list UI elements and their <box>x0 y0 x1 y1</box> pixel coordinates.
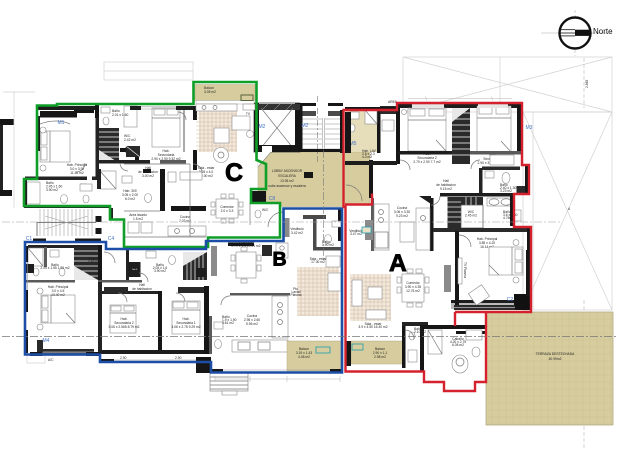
svg-text:Plasma: Plasma <box>291 293 302 297</box>
svg-text:Norte: Norte <box>593 27 613 36</box>
svg-text:TV Plasma: TV Plasma <box>463 262 467 278</box>
svg-text:4.3 m2: 4.3 m2 <box>362 155 372 159</box>
svg-text:C4: C4 <box>108 236 115 242</box>
svg-text:A: A <box>389 250 407 277</box>
svg-text:3.06 x 2.565 8.79 m2: 3.06 x 2.565 8.79 m2 <box>109 325 140 329</box>
svg-text:0.48 m2: 0.48 m2 <box>88 259 100 263</box>
svg-text:A/C: A/C <box>48 358 54 362</box>
svg-text:3.90 m2: 3.90 m2 <box>154 269 166 273</box>
svg-text:C2: C2 <box>507 297 514 303</box>
svg-text:C: C <box>225 159 243 187</box>
svg-text:5.96 m2: 5.96 m2 <box>246 322 258 326</box>
svg-text:LOBBY ASCENSOR: LOBBY ASCENSOR <box>272 169 303 173</box>
svg-text:2.0 x 3.3: 2.0 x 3.3 <box>221 209 234 213</box>
svg-text:3.05 m2: 3.05 m2 <box>204 90 216 94</box>
svg-text:TERRAZA DESTECHADA: TERRAZA DESTECHADA <box>536 352 575 356</box>
svg-text:2.01 x 1.60: 2.01 x 1.60 <box>112 113 128 117</box>
svg-text:2.98 m2: 2.98 m2 <box>374 355 386 359</box>
svg-text:3.06 x 2.75 9.29 m2: 3.06 x 2.75 9.29 m2 <box>171 325 200 329</box>
svg-text:40.99m2: 40.99m2 <box>549 357 562 361</box>
svg-text:3.00 m2: 3.00 m2 <box>142 174 154 178</box>
svg-text:C1: C1 <box>26 236 33 242</box>
svg-text:2.42 m2: 2.42 m2 <box>124 138 136 142</box>
svg-text:1.5 m2: 1.5 m2 <box>133 217 143 221</box>
svg-text:2.05 x 1.55 1.95 m2: 2.05 x 1.55 1.95 m2 <box>40 266 69 270</box>
svg-text:3.9 x 4.50 16.40 m2: 3.9 x 4.50 16.40 m2 <box>358 325 387 329</box>
svg-text:2.45 m2: 2.45 m2 <box>465 214 477 218</box>
svg-text:9.23 m2: 9.23 m2 <box>396 214 408 218</box>
svg-text:M1: M1 <box>58 120 65 126</box>
svg-text:4.48 m2: 4.48 m2 <box>298 355 310 359</box>
svg-text:2.70 x 2.90 7.7 m2: 2.70 x 2.90 7.7 m2 <box>413 160 440 164</box>
svg-text:B: B <box>273 249 287 271</box>
svg-text:3.23 m2: 3.23 m2 <box>500 189 512 193</box>
svg-text:2.10 m2: 2.10 m2 <box>414 330 426 334</box>
svg-text:3.47 m2: 3.47 m2 <box>350 232 362 236</box>
svg-text:M3: M3 <box>526 125 533 131</box>
svg-text:M2: M2 <box>302 123 309 129</box>
svg-text:3.90 m2: 3.90 m2 <box>46 188 58 192</box>
svg-text:M2: M2 <box>259 124 266 130</box>
svg-text:Tab.0: Tab.0 <box>132 269 138 271</box>
svg-text:2.90: 2.90 <box>175 356 182 360</box>
svg-text:3.42 m2: 3.42 m2 <box>291 231 303 235</box>
svg-text:de habitacion: de habitacion <box>132 287 152 291</box>
svg-text:6.08 m2: 6.08 m2 <box>452 343 464 347</box>
svg-text:3.61 m2: 3.61 m2 <box>222 321 234 325</box>
svg-text:C8: C8 <box>269 196 276 202</box>
svg-text:2.90: 2.90 <box>120 356 127 360</box>
svg-text:12.75 m2: 12.75 m2 <box>406 289 420 293</box>
svg-text:7.03 m2: 7.03 m2 <box>179 219 191 223</box>
svg-text:ESCALERA: ESCALERA <box>278 174 296 178</box>
svg-text:17.30 m2: 17.30 m2 <box>311 260 325 264</box>
svg-text:W/C: W/C <box>262 208 269 212</box>
svg-text:sube ascensor y escalera: sube ascensor y escalera <box>268 184 306 188</box>
svg-text:6.0 m2: 6.0 m2 <box>125 197 135 201</box>
svg-text:1.90 m2: 1.90 m2 <box>322 243 334 247</box>
svg-text:9.15 m2: 9.15 m2 <box>440 187 452 191</box>
svg-text:2.865: 2.865 <box>585 80 589 88</box>
svg-text:M4: M4 <box>43 338 50 344</box>
svg-text:13.40 m2: 13.40 m2 <box>51 293 65 297</box>
svg-text:13.05 m2: 13.05 m2 <box>280 179 294 183</box>
